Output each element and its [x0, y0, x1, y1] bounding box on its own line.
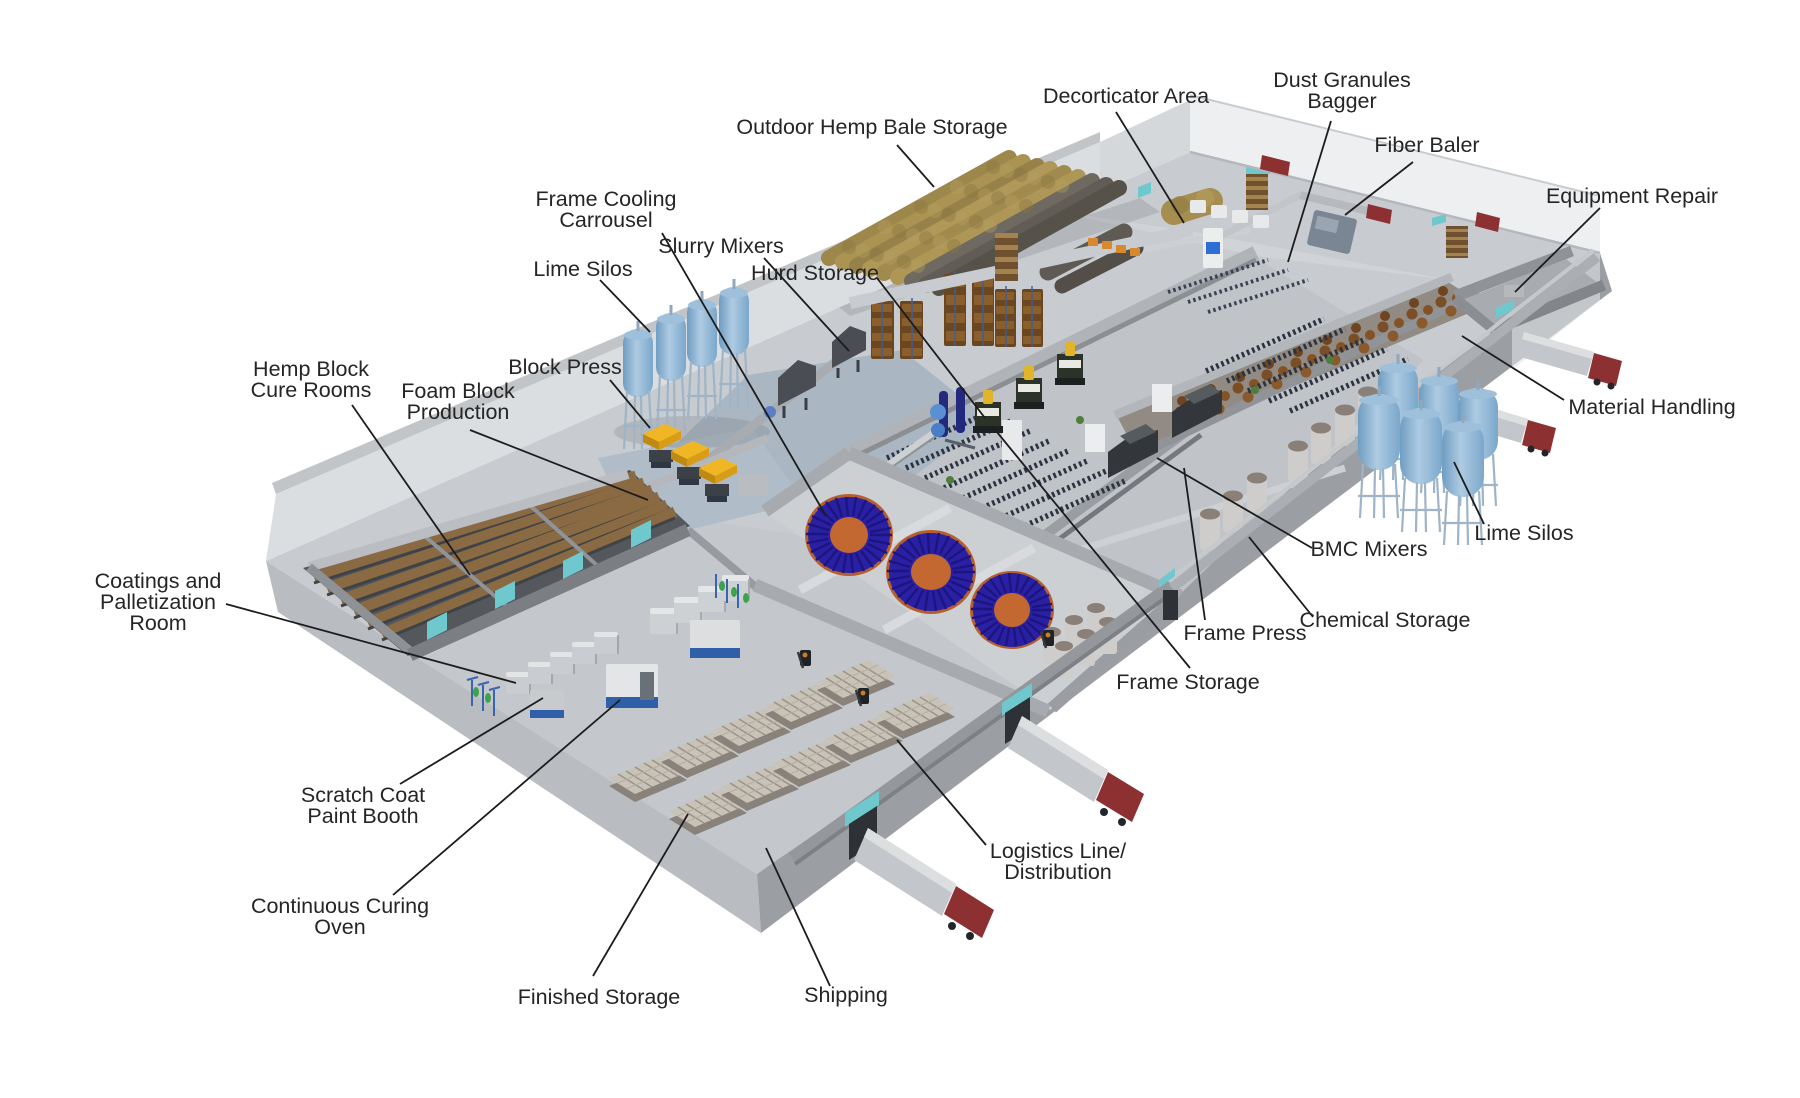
svg-text:Distribution: Distribution [1004, 860, 1112, 884]
svg-text:Shipping: Shipping [804, 983, 888, 1007]
svg-text:Equipment Repair: Equipment Repair [1546, 184, 1718, 208]
svg-text:Lime Silos: Lime Silos [1474, 521, 1573, 545]
svg-text:Cure Rooms: Cure Rooms [251, 378, 372, 402]
svg-text:Decorticator Area: Decorticator Area [1043, 84, 1209, 108]
svg-text:Bagger: Bagger [1307, 89, 1376, 113]
svg-text:Outdoor Hemp Bale Storage: Outdoor Hemp Bale Storage [736, 115, 1007, 139]
svg-text:Oven: Oven [314, 915, 365, 939]
svg-text:Paint Booth: Paint Booth [307, 804, 418, 828]
svg-text:Slurry Mixers: Slurry Mixers [658, 234, 783, 258]
svg-text:Hurd Storage: Hurd Storage [751, 261, 879, 285]
svg-text:BMC Mixers: BMC Mixers [1310, 537, 1427, 561]
svg-text:Block Press: Block Press [508, 355, 622, 379]
svg-text:Chemical Storage: Chemical Storage [1300, 608, 1471, 632]
svg-text:Material Handling: Material Handling [1568, 395, 1735, 419]
svg-text:Finished Storage: Finished Storage [518, 985, 681, 1009]
svg-text:Production: Production [407, 400, 510, 424]
svg-text:Fiber Baler: Fiber Baler [1374, 133, 1479, 157]
svg-text:Frame Press: Frame Press [1183, 621, 1306, 645]
svg-text:Carrousel: Carrousel [559, 208, 652, 232]
svg-text:Room: Room [129, 611, 186, 635]
svg-text:Lime Silos: Lime Silos [533, 257, 632, 281]
svg-text:Frame Storage: Frame Storage [1116, 670, 1259, 694]
